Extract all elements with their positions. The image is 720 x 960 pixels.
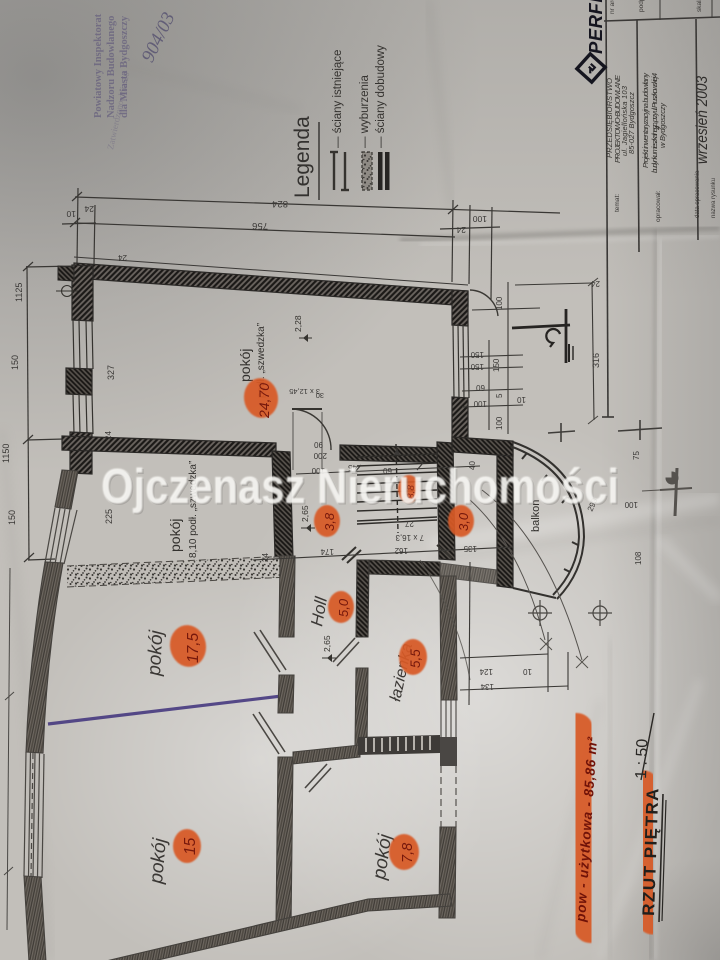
svg-text:174: 174 bbox=[320, 547, 334, 556]
svg-text:1125: 1125 bbox=[14, 283, 24, 302]
svg-text:podpis: podpis bbox=[638, 0, 645, 12]
svg-text:327: 327 bbox=[106, 365, 116, 380]
svg-text:10: 10 bbox=[523, 667, 532, 676]
svg-text:150: 150 bbox=[10, 355, 20, 370]
svg-text:w Bydgoszczy: w Bydgoszczy bbox=[658, 102, 667, 148]
svg-text:150: 150 bbox=[470, 350, 484, 359]
svg-text:pokój: pokój bbox=[144, 629, 167, 677]
svg-text:150: 150 bbox=[492, 358, 501, 372]
svg-text:3 x 12,45: 3 x 12,45 bbox=[289, 387, 320, 396]
svg-text:150: 150 bbox=[470, 362, 484, 371]
svg-text:— wyburzenia: — wyburzenia bbox=[359, 75, 371, 148]
svg-text:24,70: 24,70 bbox=[256, 383, 272, 419]
svg-text:24: 24 bbox=[261, 553, 270, 562]
svg-text:Powiatowy Inspektorat: Powiatowy Inspektorat bbox=[93, 13, 104, 118]
svg-text:134: 134 bbox=[480, 682, 494, 691]
svg-text:24: 24 bbox=[104, 431, 113, 440]
svg-text:10: 10 bbox=[66, 209, 76, 219]
svg-text:4: 4 bbox=[653, 126, 662, 130]
svg-text:Ojczenasz Nieruchomości: Ojczenasz Nieruchomości bbox=[101, 460, 619, 514]
svg-text:opracował:: opracował: bbox=[655, 190, 662, 222]
svg-text:27: 27 bbox=[405, 519, 414, 528]
svg-text:100: 100 bbox=[495, 416, 504, 430]
svg-text:24: 24 bbox=[456, 225, 466, 235]
svg-text:5: 5 bbox=[495, 393, 504, 398]
svg-text:10: 10 bbox=[517, 395, 526, 404]
svg-text:30: 30 bbox=[316, 391, 324, 400]
svg-text:100: 100 bbox=[495, 296, 504, 310]
svg-text:PERFEKT: PERFEKT bbox=[585, 0, 606, 54]
svg-text:100: 100 bbox=[473, 214, 487, 224]
svg-text:temat:: temat: bbox=[614, 194, 621, 212]
svg-text:24: 24 bbox=[84, 204, 94, 214]
svg-text:5,0: 5,0 bbox=[336, 598, 351, 617]
svg-text:824: 824 bbox=[272, 198, 288, 209]
svg-text:nazwa rysunku: nazwa rysunku bbox=[711, 178, 717, 218]
svg-text:2,65: 2,65 bbox=[322, 635, 332, 652]
svg-text:108: 108 bbox=[634, 551, 643, 565]
svg-text:— ściany istniejące: — ściany istniejące bbox=[332, 50, 344, 148]
svg-text:24: 24 bbox=[118, 253, 127, 262]
svg-text:1150: 1150 bbox=[1, 444, 11, 463]
svg-text:— ściany dobudowy: — ściany dobudowy bbox=[375, 45, 387, 148]
svg-text:90: 90 bbox=[314, 440, 323, 449]
svg-text:100: 100 bbox=[473, 399, 487, 408]
svg-text:2,28: 2,28 bbox=[293, 315, 303, 332]
svg-text:75: 75 bbox=[632, 451, 641, 460]
svg-text:200: 200 bbox=[313, 451, 327, 460]
svg-text:756: 756 bbox=[252, 220, 268, 231]
svg-text:pokój: pokój bbox=[237, 349, 253, 382]
svg-text:7,8: 7,8 bbox=[400, 843, 416, 863]
svg-text:pokój: pokój bbox=[146, 837, 171, 886]
svg-text:Projekt inwentaryzacyjna budow: Projekt inwentaryzacyjna budowlany bbox=[641, 72, 650, 168]
svg-text:85-027 Bydgoszcz: 85-027 Bydgoszcz bbox=[627, 92, 636, 154]
svg-text:316: 316 bbox=[591, 353, 601, 368]
svg-text:100: 100 bbox=[624, 500, 638, 509]
svg-text:7 x 16,3: 7 x 16,3 bbox=[395, 533, 424, 542]
svg-text:124: 124 bbox=[479, 667, 493, 676]
svg-text:pokój: pokój bbox=[167, 519, 183, 552]
svg-text:17,5: 17,5 bbox=[185, 632, 202, 663]
svg-text:15: 15 bbox=[182, 837, 199, 855]
svg-text:data opracowania: data opracowania bbox=[695, 170, 701, 218]
svg-text:60: 60 bbox=[476, 383, 485, 392]
svg-text:skala: skala bbox=[696, 0, 703, 12]
svg-text:nr arch.: nr arch. bbox=[609, 0, 616, 14]
svg-text:150: 150 bbox=[7, 510, 17, 525]
svg-text:162: 162 bbox=[394, 546, 408, 555]
svg-text:5,5: 5,5 bbox=[408, 649, 423, 668]
svg-text:wrzesień 2003: wrzesień 2003 bbox=[694, 76, 711, 164]
svg-text:Legenda: Legenda bbox=[291, 116, 314, 198]
